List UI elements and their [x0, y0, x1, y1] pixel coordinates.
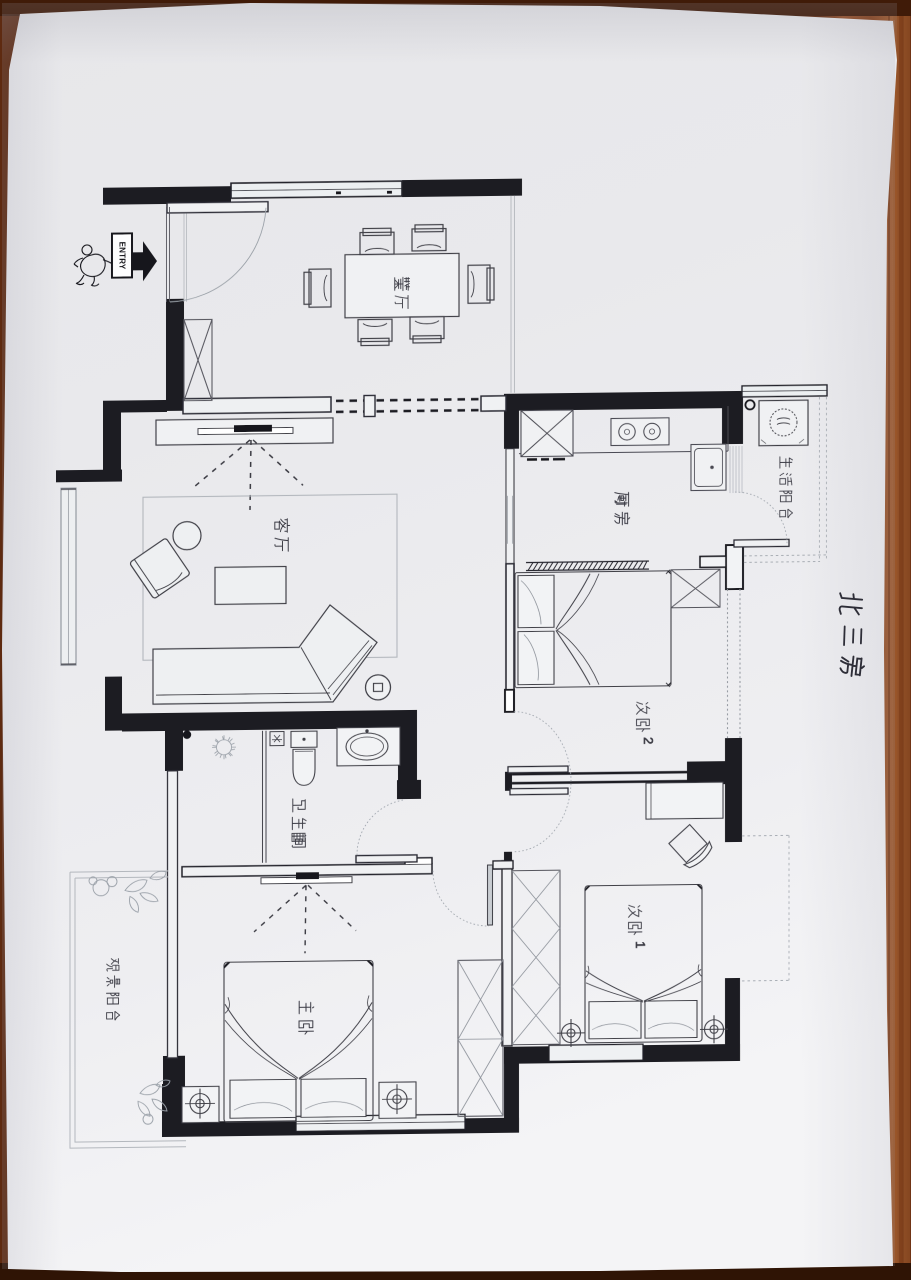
svg-text:2: 2 — [641, 737, 656, 744]
svg-text:ENTRY: ENTRY — [118, 242, 127, 270]
svg-text:1: 1 — [633, 941, 648, 948]
